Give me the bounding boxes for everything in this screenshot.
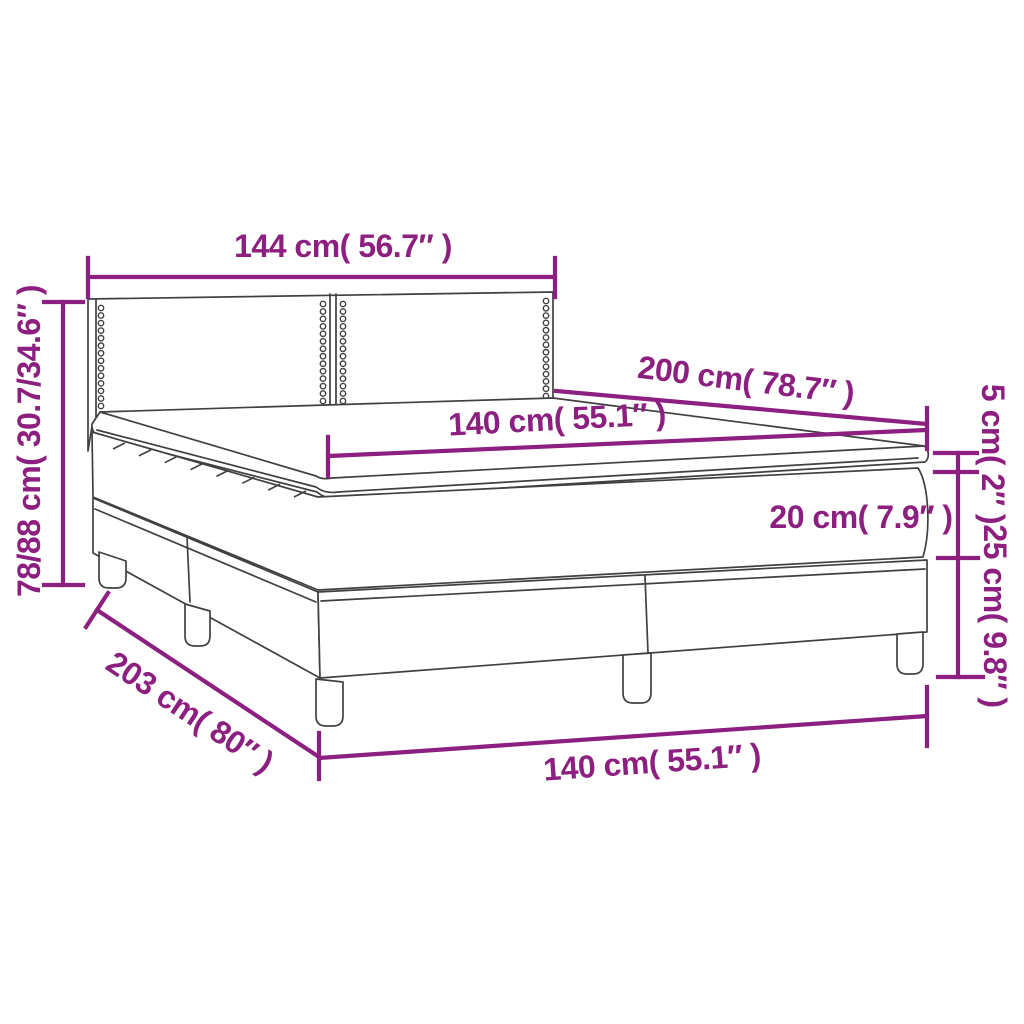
- headboard-stud: [98, 373, 103, 378]
- dim-label-mattress-thickness: 20 cm( 7.9″ ): [769, 499, 952, 535]
- headboard-stud: [340, 361, 345, 366]
- headboard-stud: [98, 381, 103, 386]
- dim-line-total-height: [44, 302, 83, 585]
- headboard-stud: [340, 301, 345, 306]
- headboard-stud: [320, 376, 325, 381]
- dim-label-base-height: 25 cm( 9.8″ ): [977, 524, 1013, 707]
- headboard-stud: [320, 339, 325, 344]
- dim-label-base-width: 140 cm( 55.1″ ): [542, 736, 762, 787]
- headboard-stud: [543, 364, 548, 369]
- headboard-stud: [98, 351, 103, 356]
- headboard-stud: [543, 386, 548, 391]
- headboard-stud: [320, 324, 325, 329]
- headboard-stud: [543, 342, 548, 347]
- bed-leg: [316, 679, 343, 726]
- headboard-stud: [98, 320, 103, 325]
- headboard-stud: [98, 328, 103, 333]
- dim-label-headboard-width: 144 cm( 56.7″ ): [234, 228, 452, 264]
- headboard-stud: [320, 331, 325, 336]
- dimension-diagram: 144 cm( 56.7″ ) 78/88 cm( 30.7/34.6″ ) 2…: [0, 0, 1024, 1024]
- headboard-stud: [543, 350, 548, 355]
- headboard-stud: [340, 331, 345, 336]
- bed-leg: [897, 632, 923, 674]
- headboard-stud: [340, 354, 345, 359]
- headboard-stud: [340, 309, 345, 314]
- headboard-stud: [98, 396, 103, 401]
- headboard-stud: [543, 371, 548, 376]
- headboard-stud: [340, 369, 345, 374]
- headboard-stud: [98, 366, 103, 371]
- headboard-stud: [98, 343, 103, 348]
- headboard-stud: [320, 391, 325, 396]
- headboard-stud: [98, 305, 103, 310]
- headboard-stud: [543, 298, 548, 303]
- headboard-stud: [98, 388, 103, 393]
- headboard-stud: [340, 398, 345, 403]
- headboard-stud: [320, 369, 325, 374]
- bed-leg: [185, 604, 210, 646]
- dim-label-total-height: 78/88 cm( 30.7/34.6″ ): [11, 285, 47, 597]
- headboard-stud: [543, 379, 548, 384]
- headboard-stud: [320, 309, 325, 314]
- headboard-stud: [340, 383, 345, 388]
- headboard-stud: [543, 313, 548, 318]
- headboard-stud: [340, 346, 345, 351]
- headboard-stud: [320, 398, 325, 403]
- headboard-stud: [340, 376, 345, 381]
- dim-label-topper-thickness: 5 cm( 2″ ): [975, 384, 1011, 524]
- headboard-stud: [98, 403, 103, 408]
- headboard-stud: [98, 358, 103, 363]
- headboard-stud: [98, 336, 103, 341]
- headboard-stud: [340, 339, 345, 344]
- headboard-stud: [320, 354, 325, 359]
- headboard-stud: [543, 320, 548, 325]
- headboard-stud: [320, 301, 325, 306]
- headboard-stud: [98, 313, 103, 318]
- headboard-stud: [320, 316, 325, 321]
- headboard-stud: [340, 391, 345, 396]
- headboard-stud: [320, 383, 325, 388]
- headboard-stud: [340, 324, 345, 329]
- headboard-stud: [543, 306, 548, 311]
- headboard-stud: [320, 346, 325, 351]
- headboard-stud: [543, 335, 548, 340]
- headboard-stud: [340, 316, 345, 321]
- headboard-stud: [320, 361, 325, 366]
- headboard-stud: [543, 357, 548, 362]
- headboard-stud: [543, 328, 548, 333]
- bed-leg: [623, 653, 651, 703]
